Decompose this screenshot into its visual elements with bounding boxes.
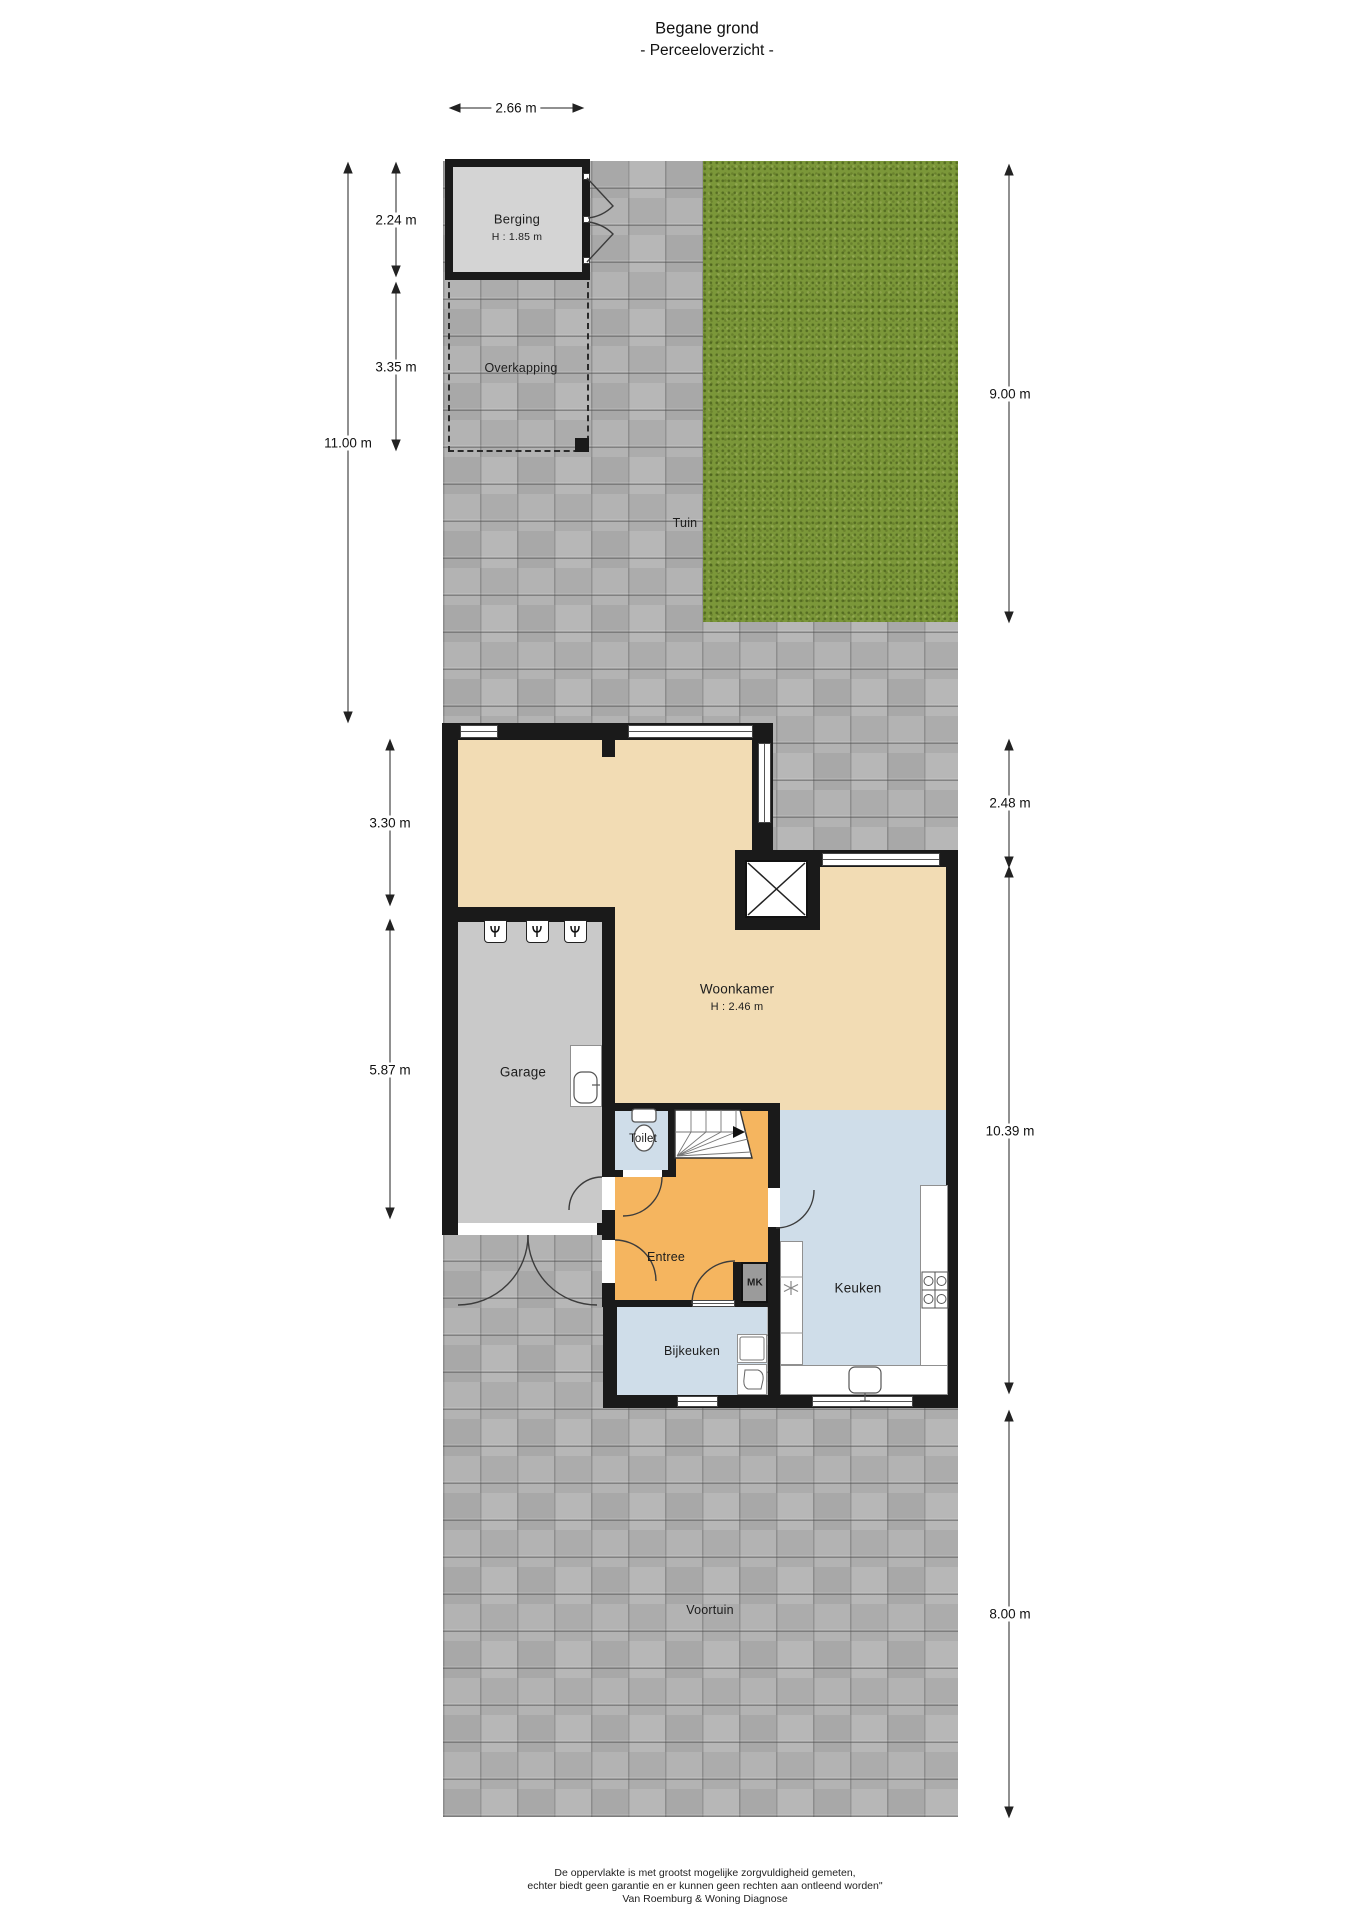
garden-grass (703, 161, 958, 622)
overkapping-post (575, 438, 589, 452)
wall (602, 1103, 772, 1111)
wall (442, 723, 458, 1235)
kitchen-counter (920, 1185, 948, 1367)
label-entree: Entree (647, 1250, 685, 1264)
label-bijkeuken: Bijkeuken (664, 1344, 720, 1358)
window (677, 1396, 718, 1407)
wall (768, 1227, 780, 1395)
footer-disclaimer-line1: De oppervlakte is met grootst mogelijke … (554, 1867, 855, 1879)
wall (768, 1103, 780, 1188)
dimension-woonkamer-left: 3.30 m (365, 816, 414, 831)
dimension-voortuin-depth: 8.00 m (985, 1607, 1034, 1622)
wall (603, 1300, 692, 1307)
vent-icon (564, 920, 587, 943)
kitchen-counter-bottom (780, 1365, 948, 1395)
kitchen-door-opening (768, 1188, 780, 1227)
washer (737, 1334, 767, 1363)
garage-sink-unit (570, 1045, 602, 1107)
label-keuken: Keuken (835, 1281, 882, 1296)
window (812, 1396, 913, 1407)
dimension-garage-depth: 5.87 m (365, 1063, 414, 1078)
label-berging: Berging (494, 212, 540, 227)
berging-door-hinge (583, 216, 590, 223)
footer-company: Van Roemburg & Woning Diagnose (622, 1893, 787, 1905)
berging-door-hinge (583, 257, 590, 264)
dimension-backyard-total: 11.00 m (320, 436, 376, 451)
wall (662, 1170, 676, 1177)
vent-icon (526, 920, 549, 943)
berging-door-hinge (583, 173, 590, 180)
window (758, 743, 771, 823)
label-voortuin: Voortuin (686, 1603, 733, 1617)
label-tuin: Tuin (673, 516, 698, 530)
garage-door-opening (458, 1223, 597, 1235)
label-overkapping: Overkapping (484, 361, 557, 375)
shaft-box (745, 860, 808, 918)
dimension-overkapping-depth: 3.35 m (371, 360, 420, 375)
wall (609, 1170, 623, 1177)
floor-plan-page: Begane grond - Perceeloverzicht - (0, 0, 1358, 1920)
label-garage: Garage (500, 1065, 546, 1080)
wall-stub (602, 740, 615, 757)
window (822, 853, 940, 866)
wall (668, 1103, 676, 1177)
wall (603, 1307, 617, 1395)
garage-interior-door-opening (602, 1177, 615, 1210)
footer-disclaimer-line2: echter biedt geen garantie en er kunnen … (527, 1880, 882, 1892)
label-woonkamer: Woonkamer (700, 982, 774, 997)
page-subtitle: - Perceeloverzicht - (640, 42, 774, 60)
dimension-tuin-depth: 9.00 m (985, 387, 1034, 402)
toilet-door-opening (623, 1170, 662, 1177)
label-toilet: Toilet (629, 1133, 657, 1145)
bijkeuken-door-threshold (692, 1300, 735, 1307)
page-title: Begane grond (655, 20, 759, 39)
kitchen-cabinet-column (780, 1241, 803, 1365)
laundry-sink-box (737, 1364, 767, 1395)
window (460, 725, 498, 738)
label-woonkamer-height: H : 2.46 m (711, 1001, 764, 1013)
label-mk: MK (747, 1278, 763, 1289)
vent-icon (484, 920, 507, 943)
label-berging-height: H : 1.85 m (492, 231, 542, 243)
window (628, 725, 753, 738)
dimension-berging-width: 2.66 m (491, 101, 540, 116)
dimension-house-right: 10.39 m (982, 1124, 1039, 1139)
front-door-opening (602, 1240, 615, 1283)
dimension-setback: 2.48 m (985, 796, 1034, 811)
dimension-berging-depth: 2.24 m (371, 213, 420, 228)
